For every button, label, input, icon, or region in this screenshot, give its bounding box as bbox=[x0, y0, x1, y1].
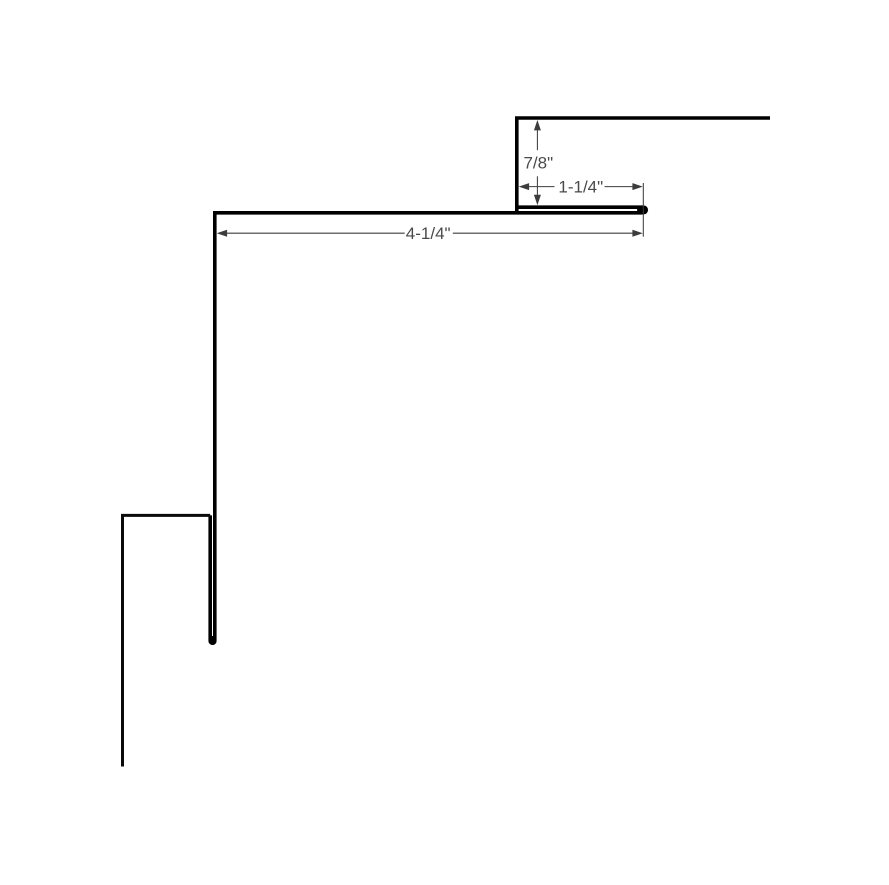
svg-text:4-1/4": 4-1/4" bbox=[406, 224, 451, 243]
svg-text:7/8": 7/8" bbox=[523, 153, 553, 172]
svg-text:1-1/4": 1-1/4" bbox=[558, 177, 603, 196]
